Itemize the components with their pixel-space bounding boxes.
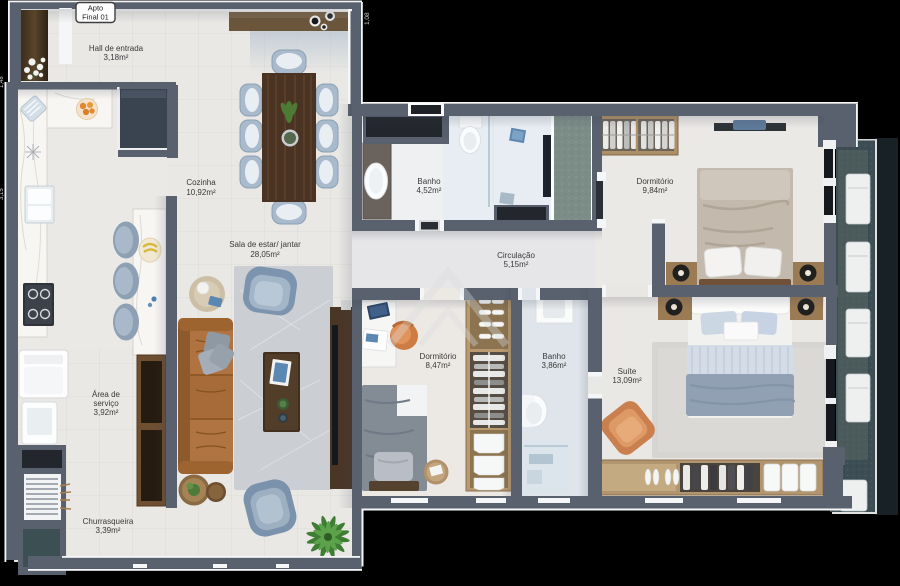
svg-text:1,48: 1,48 [0, 76, 5, 88]
svg-text:Área de: Área de [92, 390, 121, 399]
svg-text:Suíte: Suíte [618, 367, 637, 376]
svg-text:4,52m²: 4,52m² [417, 186, 442, 195]
svg-text:13,09m²: 13,09m² [612, 376, 642, 385]
svg-text:3,92m²: 3,92m² [94, 408, 119, 417]
svg-text:Cozinha: Cozinha [186, 178, 216, 187]
svg-text:serviço: serviço [93, 399, 119, 408]
svg-text:Banho: Banho [417, 177, 441, 186]
svg-text:Sala de estar/ jantar: Sala de estar/ jantar [229, 240, 301, 249]
svg-text:5,15m²: 5,15m² [504, 260, 529, 269]
svg-text:28,05m²: 28,05m² [250, 250, 280, 259]
svg-text:8,47m²: 8,47m² [426, 361, 451, 370]
svg-text:3,39m²: 3,39m² [96, 526, 121, 535]
svg-text:Circulação: Circulação [497, 251, 535, 260]
svg-text:Dormitório: Dormitório [420, 352, 457, 361]
svg-text:3,86m²: 3,86m² [542, 361, 567, 370]
svg-text:3,18m²: 3,18m² [104, 53, 129, 62]
svg-text:Churrasqueira: Churrasqueira [83, 517, 134, 526]
svg-text:9,84m²: 9,84m² [643, 186, 668, 195]
svg-text:1,08: 1,08 [364, 12, 371, 25]
svg-text:10,92m²: 10,92m² [186, 188, 216, 197]
svg-text:Hall de entrada: Hall de entrada [89, 44, 144, 53]
svg-text:3,15: 3,15 [0, 188, 5, 200]
svg-text:Dormitório: Dormitório [637, 177, 674, 186]
svg-text:Final 01: Final 01 [82, 13, 109, 22]
svg-text:Banho: Banho [542, 352, 566, 361]
svg-text:Apto: Apto [88, 4, 103, 13]
